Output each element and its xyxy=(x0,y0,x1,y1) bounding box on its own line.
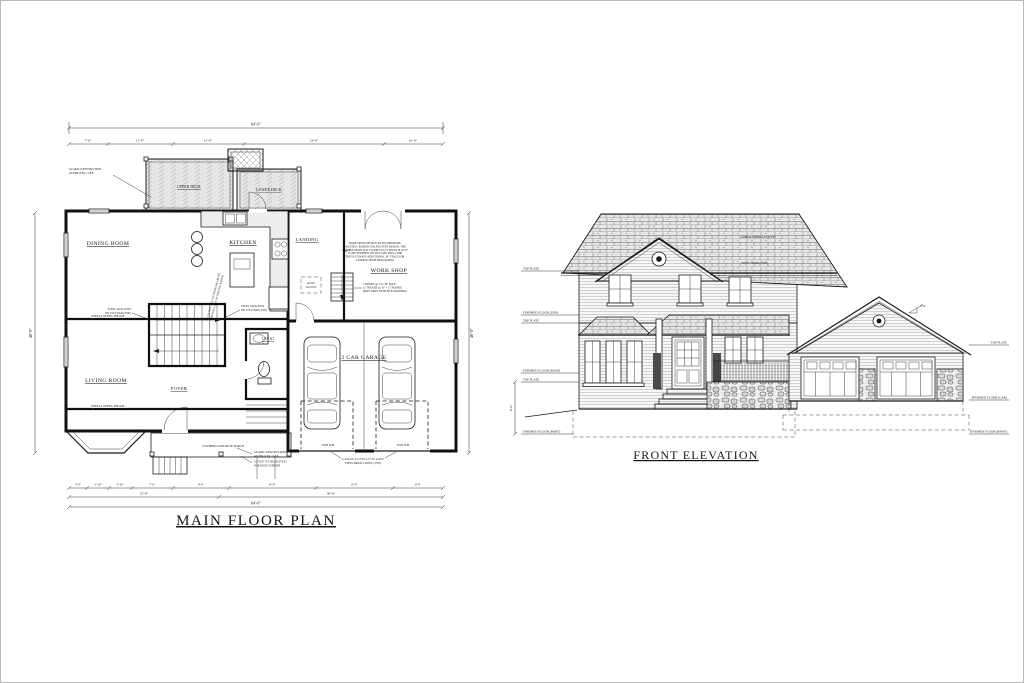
svg-text:14'-9": 14'-9" xyxy=(268,483,276,487)
drawing-sheet: W8X24 STEEL BEAM W8X24 STEEL BEAM xyxy=(0,0,1024,683)
room-label-workshop: WORK SHOP xyxy=(371,268,407,274)
svg-text:STEEL JACK POST: STEEL JACK POST xyxy=(107,308,131,311)
svg-text:GUARD CONSTRUCTION: GUARD CONSTRUCTION xyxy=(254,451,286,454)
grade-line xyxy=(525,410,577,417)
interior-walls xyxy=(149,304,288,423)
garage-gable-vent xyxy=(873,315,885,327)
room-label-lav: LAV #1 xyxy=(262,337,275,341)
upper-deck xyxy=(144,157,233,211)
front-door xyxy=(672,337,704,389)
svg-text:46'-0": 46'-0" xyxy=(469,328,474,338)
svg-text:13'-0": 13'-0" xyxy=(350,483,358,487)
slope-marker: 4/12 xyxy=(909,304,926,313)
second-storey-windows xyxy=(607,275,753,306)
svg-text:64'-0": 64'-0" xyxy=(251,122,261,127)
bay-window xyxy=(67,429,145,453)
porch-steps xyxy=(153,457,187,474)
svg-text:STEEL JACK POST: STEEL JACK POST xyxy=(241,305,265,308)
svg-text:TOP PLATE: TOP PLATE xyxy=(523,378,539,382)
stone-pier-right xyxy=(937,369,963,401)
note-guard-bottom: GUARD CONSTRUCTION AS PER O.B.C. 9.8.8. xyxy=(237,448,286,458)
note-stair: 7 RISERS @ 7-11/16" MAX. 11 TREADS @ 10"… xyxy=(354,283,407,293)
svg-text:AS PER O.B.C. 9.8.8.: AS PER O.B.C. 9.8.8. xyxy=(69,172,94,175)
room-label-living: LIVING ROOM xyxy=(85,378,127,384)
garage-gable-face xyxy=(795,303,963,353)
stone-pier-center xyxy=(859,369,875,401)
oh-door-label-2: 9'X8' O/H xyxy=(397,443,410,447)
floor-plan-title: MAIN FLOOR PLAN xyxy=(176,513,336,529)
svg-text:TOP PLATE: TOP PLATE xyxy=(991,341,1007,345)
svg-text:9'-6": 9'-6" xyxy=(198,483,205,487)
room-label-landing: LANDING xyxy=(295,237,318,242)
svg-text:TOP PLATE: TOP PLATE xyxy=(523,319,539,323)
attic-access-label-1: ATTIC xyxy=(307,282,315,285)
note-lintel: L-ANGLE 3-1/2"X3-1/2" W/ 4-9/16" STEEL B… xyxy=(331,452,396,465)
svg-text:11'-0": 11'-0" xyxy=(136,139,145,143)
basement-foundation xyxy=(573,411,795,437)
note-jack-right: STEEL JACK POST ON 4"X4" PAD (TYP.) xyxy=(226,305,267,317)
front-elevation: 4/12 TOP PLATE xyxy=(509,214,1009,462)
beam-label-lower: W8X24 STEEL BEAM xyxy=(91,404,125,408)
room-label-foyer: FOYER xyxy=(171,386,188,391)
levels-left: TOP PLATE FINISHED FLOOR (2ND) TOP PLATE… xyxy=(509,267,579,437)
deck-label-upper: UPPER DECK xyxy=(177,185,201,189)
svg-text:L-ANGLE 3-1/2"X3-1/2" W/ 4-9/1: L-ANGLE 3-1/2"X3-1/2" W/ 4-9/16" xyxy=(342,458,384,461)
elevation-title: FRONT ELEVATION xyxy=(633,448,758,462)
architectural-drawing: W8X24 STEEL BEAM W8X24 STEEL BEAM xyxy=(1,1,1024,683)
room-label-kitchen: KITCHEN xyxy=(229,240,256,246)
svg-text:LANDING HIGH HEAD ROOM.: LANDING HIGH HEAD ROOM. xyxy=(356,259,395,262)
garage-footing xyxy=(783,401,969,430)
gable-vent xyxy=(652,252,666,266)
svg-text:10'-0": 10'-0" xyxy=(409,139,418,143)
bar-stools xyxy=(192,232,203,267)
svg-text:ON 4"X4" PAD (TYP.): ON 4"X4" PAD (TYP.) xyxy=(241,309,267,312)
attic-access-label-2: ACCESS xyxy=(306,286,317,289)
svg-text:FINISHED FLOOR (BSMT): FINISHED FLOOR (BSMT) xyxy=(523,430,560,434)
svg-text:64'-0": 64'-0" xyxy=(251,501,261,506)
note-shingles: ASPHALT SHINGLES (TYP.) xyxy=(741,236,776,239)
svg-text:3'-10": 3'-10" xyxy=(116,483,124,487)
kitchen-sink xyxy=(223,212,247,225)
svg-text:STEEL BRICK LINTEL (TYP.): STEEL BRICK LINTEL (TYP.) xyxy=(345,462,381,465)
svg-text:GUARD CONSTRUCTION: GUARD CONSTRUCTION xyxy=(69,168,101,171)
room-label-porch: COVERED CONCRETE PORCH xyxy=(202,444,244,448)
svg-text:7'-0": 7'-0" xyxy=(149,483,156,487)
garage-wing: 4/12 xyxy=(783,297,971,430)
svg-text:46'-0": 46'-0" xyxy=(28,328,33,338)
svg-text:23'-8": 23'-8" xyxy=(310,139,319,143)
dims-right: 46'-0" xyxy=(467,211,474,455)
garage-door-1 xyxy=(801,357,859,399)
garage-door-2 xyxy=(877,357,935,399)
svg-text:6'-9": 6'-9" xyxy=(415,483,422,487)
note-truss: ROOF TRUSS DESIGN TO INCORPORATE VAULTED… xyxy=(342,242,408,262)
note-siding: VINYL SIDING (TYP.) xyxy=(741,262,768,265)
svg-text:25'-6": 25'-6" xyxy=(140,492,149,496)
svg-text:FINISHED FLOOR (2ND): FINISHED FLOOR (2ND) xyxy=(523,311,558,315)
svg-text:3-2"X10" P.T. BEAM (TYP.): 3-2"X10" P.T. BEAM (TYP.) xyxy=(254,461,287,464)
stone-skirt xyxy=(707,382,791,409)
svg-text:7'-6": 7'-6" xyxy=(85,139,92,143)
porch-roof xyxy=(647,315,789,335)
deck-label-lower: LOWER DECK xyxy=(256,188,282,192)
note-guard-top: GUARD CONSTRUCTION AS PER O.B.C. 9.8.8. xyxy=(69,168,151,197)
basement-height-dim: 9'-0" xyxy=(509,404,513,411)
svg-text:AS PER O.B.C. 9.8.8.: AS PER O.B.C. 9.8.8. xyxy=(254,455,279,458)
dims-bottom: 3'-0" 3'-10" 3'-10" 7'-0" 9'-6" 14'-9" 1… xyxy=(67,483,445,510)
svg-text:3'-10": 3'-10" xyxy=(94,483,102,487)
svg-text:FINISHED FLOOR (GAR): FINISHED FLOOR (GAR) xyxy=(972,396,1007,400)
levels-right: TOP PLATE FINISHED FLOOR (GAR) FINISHED … xyxy=(969,341,1009,435)
svg-text:(MAY VARY WITH SITE GRADING): (MAY VARY WITH SITE GRADING) xyxy=(363,290,407,293)
svg-text:12'-0": 12'-0" xyxy=(204,139,213,143)
step-newel-left xyxy=(653,353,661,389)
fridge xyxy=(269,287,288,309)
kitchen-range xyxy=(272,239,288,259)
svg-text:TOP PLATE: TOP PLATE xyxy=(523,267,539,271)
svg-text:36'-6": 36'-6" xyxy=(327,492,336,496)
svg-text:4/12: 4/12 xyxy=(920,304,926,308)
kitchen-island xyxy=(230,253,254,287)
room-label-dining: DINING ROOM xyxy=(87,241,129,247)
kitchen-fixtures xyxy=(192,211,289,311)
main-left-windows xyxy=(583,341,644,387)
svg-text:ON 4"X4" PAD (TYP.): ON 4"X4" PAD (TYP.) xyxy=(105,312,131,315)
attic-access: ATTIC ACCESS xyxy=(301,277,321,293)
room-label-garage: 2 CAR GARAGE xyxy=(341,355,386,361)
chimney xyxy=(228,149,263,171)
svg-text:FINISHED FLOOR (BSMT): FINISHED FLOOR (BSMT) xyxy=(970,430,1007,434)
dims-left: 46'-0" xyxy=(28,211,37,455)
dims-top: 64'-0" 7'-6" 11'-0" 12'-0" 23'-8" 10'-0" xyxy=(67,122,445,147)
note-flush-beam: 3-1 3/4"X14" LVL FLUSH BEAM ABOVE THIS W… xyxy=(206,272,225,322)
svg-text:FOR ROOF SUPPORT: FOR ROOF SUPPORT xyxy=(254,465,281,468)
svg-text:FINISHED FLOOR (MAIN): FINISHED FLOOR (MAIN) xyxy=(523,369,560,373)
stairs-landing xyxy=(331,273,353,301)
garage-doors-plan xyxy=(299,401,430,453)
oh-door-label-1: 9'X8' O/H xyxy=(322,443,335,447)
car-1 xyxy=(304,337,340,429)
floor-plan: W8X24 STEEL BEAM W8X24 STEEL BEAM xyxy=(28,122,474,530)
car-2 xyxy=(379,337,415,429)
svg-text:3'-0": 3'-0" xyxy=(75,483,82,487)
porch-post-right xyxy=(706,319,712,389)
